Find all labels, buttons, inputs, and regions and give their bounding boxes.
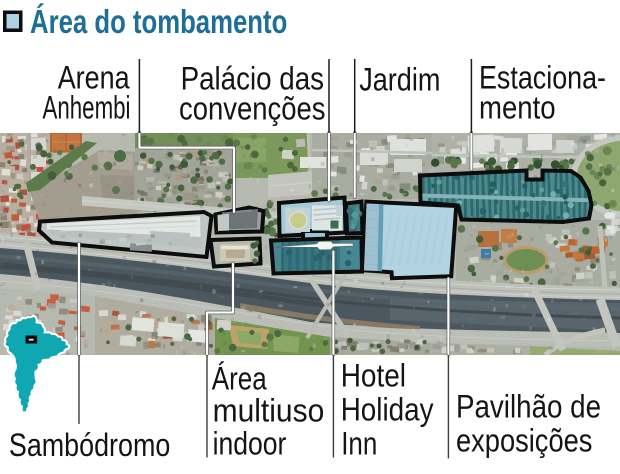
svg-text:mento: mento [479,90,556,126]
svg-text:Holiday: Holiday [341,392,434,428]
svg-text:indoor: indoor [213,426,287,462]
svg-text:Sambódromo: Sambódromo [9,427,170,463]
svg-text:exposições: exposições [456,422,592,458]
svg-text:Hotel: Hotel [341,358,406,394]
svg-text:convenções: convenções [179,90,326,126]
svg-text:Inn: Inn [341,426,377,462]
svg-text:Área: Área [212,360,267,396]
svg-text:Jardim: Jardim [359,61,440,97]
svg-text:multiuso: multiuso [213,393,325,429]
svg-text:Pavilhão de: Pavilhão de [456,389,601,425]
svg-text:Anhembi: Anhembi [43,89,131,125]
svg-text:Área do tombamento: Área do tombamento [30,3,287,40]
